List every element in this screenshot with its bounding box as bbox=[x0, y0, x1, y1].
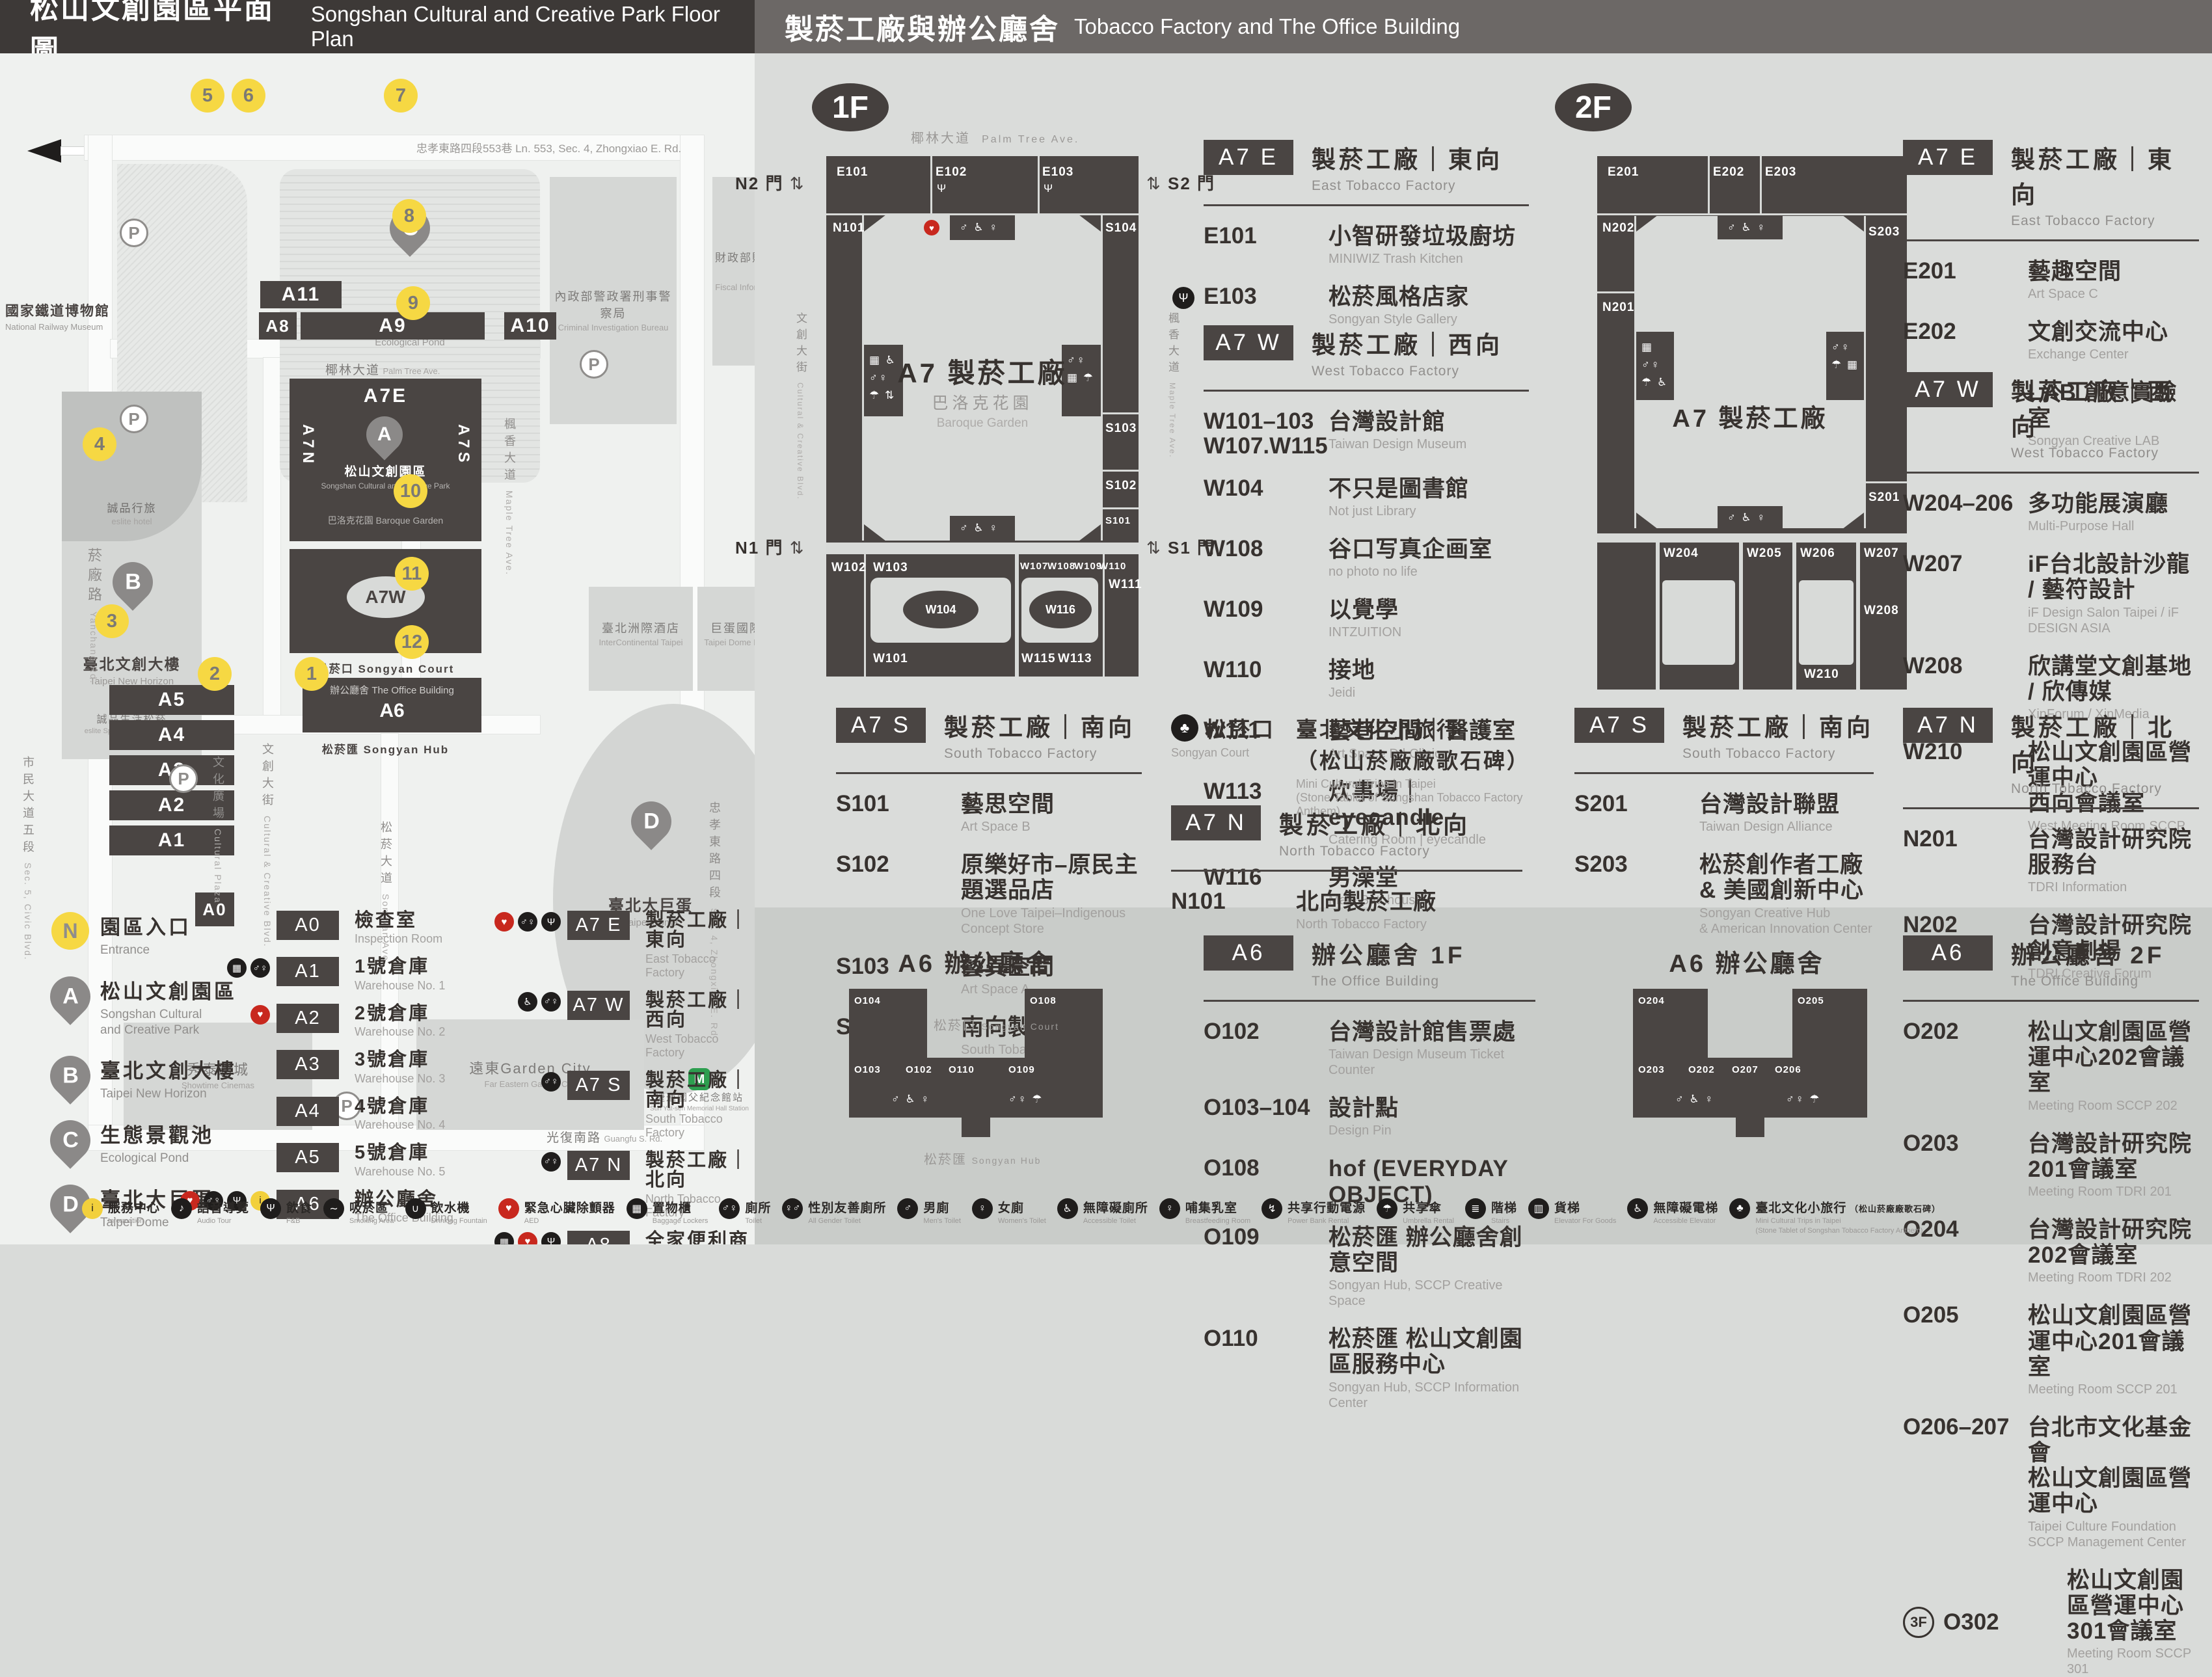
room-label: S203 bbox=[1868, 225, 1900, 239]
section-a7s-2f: A7 S製菸工廠｜南向South Tobacco FactoryS201台灣設計… bbox=[1574, 708, 1874, 937]
room-label: W111 bbox=[1109, 578, 1142, 592]
room-name: 台灣設計館Taiwan Design Museum bbox=[1329, 409, 1466, 459]
room-label: N201 bbox=[1602, 301, 1634, 315]
list-item: W207iF台北設計沙龍 / 藝符設計iF Design Salon Taipe… bbox=[1903, 552, 2199, 636]
legend-zh: 園區入口 bbox=[100, 911, 191, 940]
footer-zh: 語音導覽 bbox=[197, 1198, 249, 1216]
room-code: S102 bbox=[836, 852, 961, 936]
legend-badge: A7 W bbox=[567, 991, 630, 1020]
footer-en: Women's Toilet bbox=[998, 1217, 1046, 1226]
list-item: E101小智研發垃圾廚坊MINIWIZ Trash Kitchen bbox=[1204, 224, 1529, 267]
footer-en: Men's Toilet bbox=[923, 1217, 961, 1226]
entrance-11: 11 bbox=[395, 557, 429, 591]
list-item: O109松菸匯 辦公廳舍創意空間Songyan Hub, SCCP Creati… bbox=[1204, 1225, 1535, 1309]
legend-en: Ecological Pond bbox=[100, 1151, 214, 1166]
room-name-en2: & American Innovation Center bbox=[1699, 921, 1872, 937]
section-title-en: The Office Building bbox=[1312, 974, 1465, 989]
footer-en: Power Bank Rental bbox=[1288, 1217, 1366, 1226]
legend-badge: A7 S bbox=[567, 1071, 630, 1100]
toilet-icon: ♂♀ bbox=[250, 958, 270, 978]
room-name: 松菸創作者工廠& 美國創新中心Songyan Creative Hub& Ame… bbox=[1699, 852, 1872, 936]
room-code-2: W107.W115 bbox=[1204, 434, 1329, 459]
section-title-zh: 辦公廳舍 1F bbox=[1312, 935, 1465, 971]
list-item: O205松山文創園區營運中心201會議室Meeting Room SCCP 20… bbox=[1903, 1303, 2199, 1397]
section-a7n-1f: A7 N製菸工廠｜北向North Tobacco FactoryN101北向製菸… bbox=[1171, 805, 1522, 932]
section-title-zh: 製菸工廠與辦公廳舍 bbox=[785, 6, 1060, 47]
fia-building: 財政部財政資訊中心 Fiscal Information Agency, MOF bbox=[712, 177, 755, 366]
fnb-icon: Ψ bbox=[1044, 182, 1054, 195]
legend-zh: 生態景觀池 bbox=[100, 1119, 214, 1148]
pin-b-icon: B bbox=[104, 554, 161, 611]
footer-en: Umbrella Rental bbox=[1403, 1217, 1454, 1226]
entrance-1: 1 bbox=[295, 657, 329, 691]
header-left: 松山文創園區平面圖 Songshan Cultural and Creative… bbox=[0, 0, 755, 53]
room-name-zh: 松菸創作者工廠 bbox=[1699, 852, 1872, 878]
room-name-zh: 松山文創園區營運中心301會議室 bbox=[2067, 1568, 2199, 1644]
room-name: 台灣設計研究院202會議室Meeting Room TDRI 202 bbox=[2028, 1217, 2199, 1285]
room-name: iF台北設計沙龍 / 藝符設計iF Design Salon Taipei / … bbox=[2028, 552, 2199, 636]
room-code: O103–104 bbox=[1204, 1095, 1329, 1138]
legend-buildings-a7-a11: ♥♂♀ΨA7 E製菸工廠｜東向East Tobacco Factory♿♂♀A7… bbox=[567, 911, 755, 1244]
list-item: O204台灣設計研究院202會議室Meeting Room TDRI 202 bbox=[1903, 1217, 2199, 1285]
room-code: O206–207 bbox=[1903, 1415, 2028, 1550]
legend-item: ▦♂♀A11號倉庫Warehouse No. 1 bbox=[276, 957, 491, 992]
room-label: O108 bbox=[1030, 995, 1057, 1006]
room-name-zh: 藝思空間 bbox=[961, 792, 1055, 817]
footer-zh: 男廁 bbox=[923, 1198, 961, 1216]
pin-c-icon: C bbox=[42, 1112, 99, 1169]
section-header: A7 E製菸工廠｜東向East Tobacco Factory bbox=[1903, 140, 2199, 241]
room-name-en: Not just Library bbox=[1329, 503, 1469, 519]
room-name-zh: 以覺學 bbox=[1329, 597, 1401, 623]
legend-en: West Tobacco Factory bbox=[645, 1032, 755, 1060]
room-name: 藝趣空間Art Space C bbox=[2028, 259, 2122, 302]
room-code: W110 bbox=[1204, 658, 1329, 701]
section-header: A6辦公廳舍 2FThe Office Building bbox=[1903, 935, 2199, 1002]
legend-en: Songshan Cultural and Creative Park bbox=[100, 1007, 237, 1038]
footer-item: ☂共享傘Umbrella Rental bbox=[1377, 1198, 1454, 1226]
trips-icon: ♣ bbox=[1729, 1198, 1750, 1219]
room-code: W104 bbox=[1204, 476, 1329, 519]
plan-1f: ♂ ♿ ♀ ♂ ♿ ♀ ▦ ♿♂♀☂ ⇅ ♂♀▦ ☂ ♥ E101 E102 Ψ… bbox=[826, 156, 1139, 677]
entrance-5: 5 bbox=[191, 79, 224, 113]
footer-zh: 緊急心臟除顫器 bbox=[524, 1198, 615, 1216]
room-name-zh: 台灣設計聯盟 bbox=[1699, 792, 1840, 817]
list-item: W109以覺學INTZUITION bbox=[1204, 597, 1529, 640]
room-code: E103 bbox=[1204, 284, 1329, 327]
plan-a6-1f: A6 辦公廳舍 松菸口 Songyan Court O104 O108 O103… bbox=[813, 937, 1139, 1177]
room-label: S104 bbox=[1105, 221, 1137, 235]
room-name-zh: 台灣設計研究院 服務台 bbox=[2028, 827, 2199, 878]
legend-en: Warehouse No. 1 bbox=[355, 979, 445, 993]
section-header: A7 N製菸工廠｜北向North Tobacco Factory bbox=[1903, 708, 2199, 809]
room-label: W208 bbox=[1864, 604, 1899, 618]
room-label: O102 bbox=[906, 1064, 932, 1075]
block-a11: A11 bbox=[260, 281, 342, 308]
pin-b-icon: B bbox=[42, 1047, 99, 1105]
women-icon: ♀ bbox=[972, 1198, 993, 1219]
room-name-en: Jeidi bbox=[1329, 685, 1375, 701]
legend-zh: 5號倉庫 bbox=[355, 1143, 445, 1162]
section-title-zh: 辦公廳舍 2F bbox=[2011, 935, 2165, 971]
section-title-en: West Tobacco Factory bbox=[2011, 446, 2199, 461]
legend-badge: A2 bbox=[276, 1004, 339, 1033]
entrance-9: 9 bbox=[396, 286, 430, 320]
entrance-icon: N bbox=[51, 912, 89, 950]
room-name-en: iF Design Salon Taipei / iF DESIGN ASIA bbox=[2028, 605, 2199, 636]
road-cultural-blvd bbox=[263, 358, 280, 729]
room-label: W210 bbox=[1804, 667, 1839, 682]
room-name: 松山文創園區營運中心201會議室Meeting Room SCCP 201 bbox=[2028, 1303, 2199, 1397]
room-label: W207 bbox=[1864, 546, 1899, 561]
footer-en: All Gender Toilet bbox=[808, 1217, 886, 1226]
floor-2f-badge: 2F bbox=[1555, 83, 1632, 131]
room-name-en: Design Pin bbox=[1329, 1123, 1399, 1138]
section-badge: A7 S bbox=[836, 708, 926, 743]
section-badge: A7 N bbox=[1171, 805, 1261, 840]
facility-legend-footer: i服務中心Information♪語音導覽Audio TourΨ飲食F&B∼吸菸… bbox=[82, 1198, 1941, 1235]
room-label: O204 bbox=[1638, 995, 1665, 1006]
room-code: N101 bbox=[1171, 889, 1296, 932]
aed-icon: ♥ bbox=[924, 220, 939, 235]
room-name: 松菸匯 辦公廳舍創意空間Songyan Hub, SCCP Creative S… bbox=[1329, 1225, 1535, 1309]
men-icon: ♂ bbox=[897, 1198, 918, 1219]
section-title-en: North Tobacco Factory bbox=[2011, 781, 2199, 797]
fork-icon: Ψ bbox=[1172, 287, 1194, 309]
room-name-zh: 台灣設計館售票處 bbox=[1329, 1019, 1535, 1045]
room-name-en: One Love Taipei–Indigenous Concept Store bbox=[961, 906, 1142, 937]
aed-icon: ♥ bbox=[498, 1198, 519, 1219]
legend-en: South Tobacco Factory bbox=[645, 1112, 755, 1140]
entrance-4: 4 bbox=[83, 427, 116, 461]
pin-d-icon: D bbox=[623, 793, 680, 850]
list-item: S201台灣設計聯盟Taiwan Design Alliance bbox=[1574, 792, 1874, 835]
legend-item: ♥A22號倉庫Warehouse No. 2 bbox=[276, 1004, 491, 1039]
list-item: W101–103W107.W115台灣設計館Taiwan Design Muse… bbox=[1204, 409, 1529, 459]
footer-item: Ψ飲食F&B bbox=[260, 1198, 312, 1226]
hub-label: 松菸匯 Songyan Hub bbox=[924, 1149, 1041, 1168]
room-label: W103 bbox=[873, 561, 908, 575]
toilet-icon: ♂♀ bbox=[719, 1198, 740, 1219]
section-title-zh: 製菸工廠｜南向 bbox=[1682, 708, 1874, 743]
wheelchair-icon: ♿ bbox=[518, 992, 537, 1012]
legend-item: A松山文創園區Songshan Cultural and Creative Pa… bbox=[40, 975, 275, 1038]
footer-zh: 置物櫃 bbox=[653, 1198, 708, 1216]
legend-en: Warehouse No. 3 bbox=[355, 1072, 445, 1086]
room-code: E101 bbox=[1204, 224, 1329, 267]
toilet-icon: ♂♀ bbox=[541, 1152, 561, 1172]
legend-item: A0檢查室Inspection Room bbox=[276, 911, 491, 946]
footer-en: Accessible Toilet bbox=[1083, 1217, 1148, 1226]
section-badge: A6 bbox=[1903, 935, 1993, 971]
legend-item: ♿♂♀A7 W製菸工廠｜西向West Tobacco Factory bbox=[567, 991, 755, 1060]
legend-zh: 3號倉庫 bbox=[355, 1050, 445, 1069]
songyan-court-entry: ♣ 松菸口 Songyan Court 臺北文化小旅行 （松山菸廠廠歌石碑） M… bbox=[1171, 712, 1535, 818]
info-icon: i bbox=[82, 1198, 103, 1219]
room-label: O205 bbox=[1798, 995, 1824, 1006]
plan1-maple-label: 楓香大道Maple Tree Ave. bbox=[1165, 312, 1181, 459]
room-code: E202 bbox=[1903, 319, 2028, 362]
footer-item: ♀女廁Women's Toilet bbox=[972, 1198, 1046, 1226]
room-name-en: Songyan Hub, SCCP Information Center bbox=[1329, 1380, 1535, 1411]
room-label: W102 bbox=[831, 561, 867, 575]
room-code: O203 bbox=[1903, 1131, 2028, 1200]
legend-badge: A1 bbox=[276, 957, 339, 986]
section-title-en: South Tobacco Factory bbox=[1682, 746, 1874, 762]
room-name-zh: 台北市文化基金會 bbox=[2028, 1415, 2199, 1466]
footer-item: ≣階梯Stairs bbox=[1465, 1198, 1517, 1226]
section-title-zh: 製菸工廠｜北向 bbox=[2011, 708, 2199, 778]
block-a7e-building: A7E A7N A7S A 松山文創園區 Songshan Cultural a… bbox=[290, 379, 481, 541]
room-name: 文創交流中心Exchange Center bbox=[2028, 319, 2168, 362]
room-name-zh: 設計點 bbox=[1329, 1095, 1399, 1121]
restroom-icon: ♂♀ ☂ bbox=[1008, 1093, 1043, 1106]
list-item: N201台灣設計研究院 服務台TDRI Information bbox=[1903, 827, 2199, 895]
room-label: W115 bbox=[1021, 652, 1056, 666]
list-item: S102原樂好市–原民主題選品店One Love Taipei–Indigeno… bbox=[836, 852, 1142, 936]
legend-badge: A7 N bbox=[567, 1151, 630, 1180]
section-header: A7 S製菸工廠｜南向South Tobacco Factory bbox=[1574, 708, 1874, 774]
section-header: A7 S製菸工廠｜南向South Tobacco Factory bbox=[836, 708, 1142, 774]
room-code: W109 bbox=[1204, 597, 1329, 640]
legend-zh: 檢查室 bbox=[355, 911, 442, 930]
footer-item: ♀♂性別友善廁所All Gender Toilet bbox=[782, 1198, 886, 1226]
footer-en: Smoking Area bbox=[349, 1217, 394, 1226]
section-title-zh: 製菸工廠｜西向 bbox=[1312, 325, 1503, 360]
legend-zh: 製菸工廠｜西向 bbox=[645, 991, 755, 1030]
acelev-icon: ♿ bbox=[1627, 1198, 1648, 1219]
footer-zh: 女廁 bbox=[998, 1198, 1046, 1216]
room-code: W108 bbox=[1204, 537, 1329, 580]
section-title-en: Tobacco Factory and The Office Building bbox=[1074, 14, 1460, 39]
footer-item: ∪飲水機Drinking Fountain bbox=[405, 1198, 487, 1226]
restroom-icon: ♂♀ ☂ bbox=[1786, 1093, 1820, 1106]
audio-icon: ♪ bbox=[171, 1198, 192, 1219]
room-name-en: Taipei Culture Foundation SCCP Managemen… bbox=[2028, 1519, 2199, 1550]
allgender-icon: ♀♂ bbox=[782, 1198, 803, 1219]
legend-zh: 4號倉庫 bbox=[355, 1097, 445, 1116]
list-item: O110松菸匯 松山文創園區服務中心Songyan Hub, SCCP Info… bbox=[1204, 1326, 1535, 1410]
entrance-2: 2 bbox=[198, 657, 232, 691]
room-name-en: Exchange Center bbox=[2028, 347, 2168, 362]
parking-icon: P bbox=[169, 764, 198, 793]
room-name-zh: 多功能展演廳 bbox=[2028, 491, 2168, 517]
footer-item: ♀哺集乳室Breastfeeding Room bbox=[1159, 1198, 1250, 1226]
footer-en: Stairs bbox=[1491, 1217, 1517, 1226]
block-a7w-building: A7W bbox=[290, 549, 481, 653]
footer-en: Audio Tour bbox=[197, 1217, 249, 1226]
fork-icon: Ψ bbox=[260, 1198, 281, 1219]
legend-en: Warehouse No. 5 bbox=[355, 1165, 445, 1179]
room-label: O202 bbox=[1688, 1064, 1715, 1075]
room-name-en: Art Space B bbox=[961, 819, 1055, 835]
room-name: 小智研發垃圾廚坊MINIWIZ Trash Kitchen bbox=[1329, 224, 1516, 267]
room-label: E203 bbox=[1765, 165, 1796, 180]
room-name: 台灣設計研究院201會議室Meeting Room TDRI 201 bbox=[2028, 1131, 2199, 1200]
room-label: W110 bbox=[1099, 561, 1126, 572]
footer-en: Accessible Elevator bbox=[1653, 1217, 1718, 1226]
room-name: 接地Jeidi bbox=[1329, 658, 1375, 701]
room-name: 不只是圖書館Not just Library bbox=[1329, 476, 1469, 519]
park-map-panel: 忠孝東路四段553巷 Ln. 553, Sec. 4, Zhongxiao E.… bbox=[0, 53, 755, 1244]
footer-zh: 吸菸區 bbox=[349, 1198, 394, 1216]
toilet-icon: ♂♀ bbox=[541, 992, 561, 1012]
room-name-zh: 松菸風格店家 bbox=[1329, 284, 1469, 310]
room-name-zh: 台灣設計研究院201會議室 bbox=[2028, 1131, 2199, 1182]
restroom-icon: ♂ ♿ ♀ bbox=[960, 522, 999, 535]
room-label: E202 bbox=[1713, 165, 1744, 180]
section-a6-2f: A6辦公廳舍 2FThe Office BuildingO202松山文創園區營運… bbox=[1903, 935, 2199, 1677]
room-name: 設計點Design Pin bbox=[1329, 1095, 1399, 1138]
footer-zh: 無障礙廁所 bbox=[1083, 1198, 1148, 1216]
room-name: 原樂好市–原民主題選品店One Love Taipei–Indigenous C… bbox=[961, 852, 1142, 936]
footer-zh: 階梯 bbox=[1491, 1198, 1517, 1216]
footer-item: ▥貨梯Elevator For Goods bbox=[1528, 1198, 1616, 1226]
plan1-title: A7 製菸工廠 bbox=[864, 351, 1101, 391]
section-title-en: South Tobacco Factory bbox=[944, 746, 1135, 762]
room-label: N101 bbox=[833, 221, 865, 235]
restroom-icon: ♂ ♿ ♀ bbox=[1727, 511, 1766, 524]
legend-item: B臺北文創大樓Taipei New Horizon bbox=[40, 1054, 275, 1102]
room-name-zh: 松菸匯 松山文創園區服務中心 bbox=[1329, 1326, 1535, 1377]
list-item: ΨE103松菸風格店家Songyan Style Gallery bbox=[1204, 284, 1529, 327]
room-label: W108 bbox=[1047, 561, 1075, 572]
restroom-icon: ♂ ♿ ♀ bbox=[1727, 221, 1766, 234]
legend-zh: 製菸工廠｜北向 bbox=[645, 1151, 755, 1190]
pin-a-icon: A bbox=[42, 968, 99, 1025]
restroom-icon: ♂ ♿ ♀ bbox=[960, 221, 999, 234]
room-label: O103 bbox=[854, 1064, 881, 1075]
room-name: 台灣設計聯盟Taiwan Design Alliance bbox=[1699, 792, 1840, 835]
room-name-en: Meeting Room TDRI 201 bbox=[2028, 1184, 2199, 1200]
footer-zh: 廁所 bbox=[745, 1198, 771, 1216]
room-name: 松菸風格店家Songyan Style Gallery bbox=[1329, 284, 1469, 327]
room-name: 台灣設計館售票處Taiwan Design Museum Ticket Coun… bbox=[1329, 1019, 1535, 1078]
room-name-en: Taiwan Design Museum Ticket Counter bbox=[1329, 1047, 1535, 1078]
room-name-en: Art Space C bbox=[2028, 286, 2122, 302]
cultural-plaza-label: 文化廣場Cultural Plaza bbox=[209, 756, 226, 904]
court-label: 松菸口 Songyan Court bbox=[934, 1015, 1059, 1034]
room-name-zh: 松山文創園區營運中心201會議室 bbox=[2028, 1303, 2199, 1380]
parking-icon: P bbox=[120, 219, 148, 247]
room-name-zh: 欣講堂文創基地 / 欣傳媒 bbox=[2028, 654, 2199, 704]
room-name: 松山文創園區營運中心301會議室Meeting Room SCCP 301 bbox=[2067, 1568, 2199, 1677]
footer-item: ▦置物櫃Baggage Lockers bbox=[627, 1198, 708, 1226]
room-name: 北向製菸工廠North Tobacco Factory bbox=[1296, 889, 1436, 932]
floor-1f-badge: 1F bbox=[812, 83, 889, 131]
list-item: W110接地Jeidi bbox=[1204, 658, 1529, 701]
list-item: O202松山文創園區營運中心202會議室Meeting Room SCCP 20… bbox=[1903, 1019, 2199, 1114]
section-title-en: East Tobacco Factory bbox=[2011, 213, 2199, 229]
room-name-en: Meeting Room SCCP 201 bbox=[2028, 1382, 2199, 1397]
footer-zh: 共享行動電源 bbox=[1288, 1198, 1366, 1216]
room-code: O110 bbox=[1204, 1326, 1329, 1410]
room-label: O104 bbox=[854, 995, 881, 1006]
entrance-6: 6 bbox=[232, 79, 265, 113]
legend-zh: 製菸工廠｜南向 bbox=[645, 1071, 755, 1110]
toilet-icon: ♂♀ bbox=[518, 912, 537, 932]
room-name-en: Songyan Hub, SCCP Creative Space bbox=[1329, 1278, 1535, 1309]
block-a6-building: 辦公廳舍 The Office Building A6 bbox=[303, 678, 481, 732]
room-code: S201 bbox=[1574, 792, 1699, 835]
footer-en: Mini Cultural Trips in Taipei bbox=[1755, 1217, 1941, 1226]
section-badge: A7 W bbox=[1204, 325, 1293, 360]
room-code: S101 bbox=[836, 792, 961, 835]
footer-en: AED bbox=[524, 1217, 615, 1226]
section-header: A7 W製菸工廠｜西向West Tobacco Factory bbox=[1204, 325, 1529, 392]
room-name-en: INTZUITION bbox=[1329, 624, 1401, 640]
section-badge: A7 N bbox=[1903, 708, 1993, 743]
facility-icons: ♂♀☂ ▦ bbox=[1831, 338, 1860, 373]
footer-en2: (Stone Tablet of Songshan Tobacco Factor… bbox=[1755, 1227, 1941, 1235]
room-label: W101 bbox=[873, 652, 908, 666]
aed-icon: ♥ bbox=[250, 1005, 270, 1025]
room-code: W207 bbox=[1903, 552, 2028, 636]
gate-n2: N2 門 ⇅ bbox=[735, 170, 805, 195]
room-name-zh: 松山文創園區營運中心202會議室 bbox=[2028, 1019, 2199, 1096]
legend-en: East Tobacco Factory bbox=[645, 952, 755, 980]
legend-item: N園區入口Entrance bbox=[40, 911, 275, 958]
list-item: 3FO302松山文創園區營運中心301會議室Meeting Room SCCP … bbox=[1903, 1568, 2199, 1677]
section-title-en: North Tobacco Factory bbox=[1279, 844, 1470, 859]
footer-zh: 飲水機 bbox=[431, 1198, 487, 1216]
room-label: W109 bbox=[1074, 561, 1102, 572]
room-name-zh: 台灣設計研究院202會議室 bbox=[2028, 1217, 2199, 1268]
room-label: E103 bbox=[1042, 165, 1073, 180]
room-name: 藝思空間Art Space B bbox=[961, 792, 1055, 835]
room-name-en: Multi-Purpose Hall bbox=[2028, 518, 2168, 534]
room-code: N201 bbox=[1903, 827, 2028, 895]
room-label: O110 bbox=[949, 1064, 975, 1075]
list-item: W204–206多功能展演廳Multi-Purpose Hall bbox=[1903, 491, 2199, 534]
room-label: O206 bbox=[1775, 1064, 1801, 1075]
floor-3f-badge: 3F bbox=[1903, 1607, 1934, 1638]
section-title-zh: 製菸工廠｜東向 bbox=[1312, 140, 1503, 175]
entrance-10: 10 bbox=[394, 474, 427, 508]
room-name-zh: 北向製菸工廠 bbox=[1296, 889, 1436, 915]
room-name-en: Songyan Creative Hub bbox=[1699, 906, 1872, 921]
plan1-cultural-blvd-label: 文創大街Cultural & Creative Blvd. bbox=[792, 312, 809, 500]
railway-museum-label: 國家鐵道博物館 National Railway Museum bbox=[5, 301, 116, 332]
list-item: O206–207台北市文化基金會松山文創園區營運中心Taipei Culture… bbox=[1903, 1415, 2199, 1550]
room-code: E201 bbox=[1903, 259, 2028, 302]
room-name-zh2: & 美國創新中心 bbox=[1699, 878, 1872, 903]
legend-en: Warehouse No. 4 bbox=[355, 1118, 445, 1132]
room-name-en: no photo no life bbox=[1329, 564, 1492, 580]
legend-item: A33號倉庫Warehouse No. 3 bbox=[276, 1050, 491, 1085]
songyan-hub-label: 松菸匯 Songyan Hub bbox=[290, 740, 481, 757]
room-label: N202 bbox=[1602, 221, 1634, 235]
restroom-icon: ♂ ♿ ♀ bbox=[891, 1093, 930, 1106]
plan1-palm-label: 椰林大道 Palm Tree Ave. bbox=[911, 127, 1079, 146]
legend-item: ♥♂♀ΨA7 E製菸工廠｜東向East Tobacco Factory bbox=[567, 911, 755, 980]
list-item: E201藝趣空間Art Space C bbox=[1903, 259, 2199, 302]
room-label: S101 bbox=[1105, 515, 1131, 526]
maple-ave-label: 楓香大道Maple Tree Ave. bbox=[501, 418, 518, 576]
section-header: A6辦公廳舍 1FThe Office Building bbox=[1204, 935, 1535, 1002]
block-a9: A9 bbox=[301, 312, 485, 340]
footer-en: F&B bbox=[286, 1217, 312, 1226]
restroom-icon: ♂ ♿ ♀ bbox=[1675, 1093, 1714, 1106]
plan-2f: ♂ ♿ ♀ ♂ ♿ ♀ ▦ ♂♀☂ ♿ ♂♀☂ ▦ E201 E202 E203… bbox=[1597, 156, 1907, 690]
footer-zh: 貨梯 bbox=[1554, 1198, 1616, 1216]
footer-zh: 哺集乳室 bbox=[1185, 1198, 1250, 1216]
smoke-icon: ∼ bbox=[323, 1198, 344, 1219]
list-item: S101藝思空間Art Space B bbox=[836, 792, 1142, 835]
section-title-zh: 製菸工廠｜西向 bbox=[2011, 372, 2199, 442]
access-icon: ♿ bbox=[1057, 1198, 1078, 1219]
room-name-zh: 接地 bbox=[1329, 658, 1375, 683]
